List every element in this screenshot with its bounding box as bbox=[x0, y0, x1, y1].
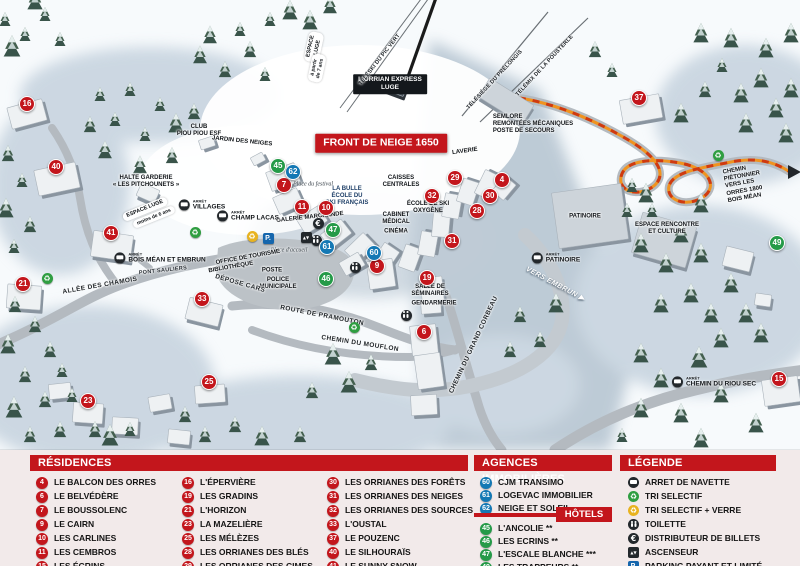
legend-number: 61 bbox=[480, 490, 492, 502]
legend-item: 30LES ORRIANES DES FORÊTS bbox=[327, 476, 465, 489]
legend-item: 16L'ÉPERVIÈRE bbox=[182, 476, 256, 489]
legend-item: 11LES CEMBROS bbox=[36, 546, 116, 559]
legend-number: 23 bbox=[182, 519, 194, 531]
legend-label: LA MAZELIÈRE bbox=[200, 520, 263, 529]
legend-number: 4 bbox=[36, 477, 48, 489]
map-marker-49: 49 bbox=[769, 235, 785, 251]
map-marker-4: 4 bbox=[494, 172, 510, 188]
legend-label: LE BALCON DES ORRES bbox=[54, 478, 156, 487]
legend-item: 61LOGEVAC IMMOBILIER bbox=[480, 489, 593, 502]
wc-icon bbox=[628, 519, 639, 530]
legend-number: 11 bbox=[36, 547, 48, 559]
legend-number: 45 bbox=[480, 523, 492, 535]
resort-map: FRONT DE NEIGE 1650L'ORRIAN EXPRESS LUGE… bbox=[0, 0, 800, 450]
legend-label: LE BELVÉDÈRE bbox=[54, 492, 119, 501]
map-marker-31: 31 bbox=[444, 233, 460, 249]
legend-item: 19LES GRADINS bbox=[182, 490, 258, 503]
legende-header: LÉGENDE bbox=[620, 455, 776, 471]
legend-item: 32LES ORRIANES DES SOURCES bbox=[327, 504, 473, 517]
legend-item: 45L'ANCOLIE ** bbox=[480, 522, 552, 535]
legend-item: 60CJM TRANSIMO bbox=[480, 476, 564, 489]
legend-item: 29LES ORRIANES DES CIMES bbox=[182, 560, 313, 566]
legend-item: 10LES CARLINES bbox=[36, 532, 116, 545]
legend-number: 15 bbox=[36, 561, 48, 566]
legend-label: LES ORRIANES DES BLÉS bbox=[200, 548, 309, 557]
legend-item: 31LES ORRIANES DES NEIGES bbox=[327, 490, 463, 503]
legend-label: L'HORIZON bbox=[200, 506, 246, 515]
map-marker-29: 29 bbox=[447, 170, 463, 186]
map-marker-30: 30 bbox=[482, 188, 498, 204]
bus-icon bbox=[628, 477, 639, 488]
residences-header: RÉSIDENCES bbox=[30, 455, 468, 471]
legend-number: 19 bbox=[182, 491, 194, 503]
legend-number: 32 bbox=[327, 505, 339, 517]
map-marker-16: 16 bbox=[19, 96, 35, 112]
legend-label: PARKING PAYANT ET LIMITÉ bbox=[645, 562, 762, 566]
legend-item: 21L'HORIZON bbox=[182, 504, 246, 517]
legend-label: LES ÉCRINS bbox=[54, 562, 105, 566]
legend-item: 6LE BELVÉDÈRE bbox=[36, 490, 119, 503]
map-marker-46: 46 bbox=[318, 271, 334, 287]
hotels-header: HÔTELS bbox=[474, 507, 612, 522]
legend-item: 41LE SUNNY SNOW bbox=[327, 560, 417, 566]
map-marker-15: 15 bbox=[771, 371, 787, 387]
map-marker-62: 62 bbox=[285, 164, 301, 180]
legend-number: 25 bbox=[182, 533, 194, 545]
legend-item: 28LES ORRIANES DES BLÉS bbox=[182, 546, 309, 559]
legend-label: LES ECRINS ** bbox=[498, 537, 558, 546]
legend-label: CJM TRANSIMO bbox=[498, 478, 564, 487]
legend-number: 37 bbox=[327, 533, 339, 545]
resort-map-screenshot: FRONT DE NEIGE 1650L'ORRIAN EXPRESS LUGE… bbox=[0, 0, 800, 566]
map-marker-41: 41 bbox=[103, 225, 119, 241]
map-marker-23: 23 bbox=[80, 393, 96, 409]
map-marker-60: 60 bbox=[366, 245, 382, 261]
legend-label: L'ÉPERVIÈRE bbox=[200, 478, 256, 487]
legend-label: LES MÉLÈZES bbox=[200, 534, 259, 543]
legend-number: 7 bbox=[36, 505, 48, 517]
legend-item: 40LE SILHOURAÏS bbox=[327, 546, 411, 559]
legend-label: LE CAIRN bbox=[54, 520, 94, 529]
legend-item: 7LE BOUSSOLENC bbox=[36, 504, 127, 517]
map-marker-28: 28 bbox=[469, 203, 485, 219]
hotels-divider bbox=[474, 513, 556, 517]
legend-label: TRI SELECTIF + VERRE bbox=[645, 506, 741, 515]
legend-label: LE SUNNY SNOW bbox=[345, 562, 417, 566]
legend-item: 9LE CAIRN bbox=[36, 518, 94, 531]
legend-item: TRI SELECTIF + VERRE bbox=[628, 504, 741, 517]
map-marker-10: 10 bbox=[318, 200, 334, 216]
legend-item: TOILETTE bbox=[628, 518, 686, 531]
legend-label: LE POUZENC bbox=[345, 534, 400, 543]
legend-label: LE SILHOURAÏS bbox=[345, 548, 411, 557]
legend-item: 23LA MAZELIÈRE bbox=[182, 518, 263, 531]
legend-number: 41 bbox=[327, 561, 339, 566]
map-marker-37: 37 bbox=[631, 90, 647, 106]
legend-item: 33L'OUSTAL bbox=[327, 518, 387, 531]
legend-item: DISTRIBUTEUR DE BILLETS bbox=[628, 532, 760, 545]
map-marker-61: 61 bbox=[319, 239, 335, 255]
legend-label: LES ORRIANES DES NEIGES bbox=[345, 492, 463, 501]
legend-item: 25LES MÉLÈZES bbox=[182, 532, 259, 545]
legend-label: L'ESCALE BLANCHE *** bbox=[498, 550, 596, 559]
agences-header: AGENCES IMMOBILIÈRES bbox=[474, 455, 612, 471]
map-marker-25: 25 bbox=[201, 374, 217, 390]
legend-label: LES ORRIANES DES FORÊTS bbox=[345, 478, 465, 487]
legend-number: 46 bbox=[480, 536, 492, 548]
legend-label: DISTRIBUTEUR DE BILLETS bbox=[645, 534, 760, 543]
legend-number: 30 bbox=[327, 477, 339, 489]
euro-icon bbox=[628, 533, 639, 544]
legend-number: 29 bbox=[182, 561, 194, 566]
map-marker-6: 6 bbox=[416, 324, 432, 340]
legend-number: 21 bbox=[182, 505, 194, 517]
legend-item: ASCENSEUR bbox=[628, 546, 698, 559]
legend-panel: RÉSIDENCES AGENCES IMMOBILIÈRES LÉGENDE … bbox=[0, 450, 800, 566]
legend-label: LES GRADINS bbox=[200, 492, 258, 501]
map-marker-45: 45 bbox=[270, 158, 286, 174]
recycle-green-icon bbox=[628, 491, 639, 502]
legend-item: 49LES TRAPPEURS ** bbox=[480, 561, 578, 566]
map-marker-47: 47 bbox=[325, 222, 341, 238]
legend-number: 40 bbox=[327, 547, 339, 559]
legend-number: 16 bbox=[182, 477, 194, 489]
legend-label: TOILETTE bbox=[645, 520, 686, 529]
legend-label: L'OUSTAL bbox=[345, 520, 387, 529]
legend-label: LE BOUSSOLENC bbox=[54, 506, 127, 515]
legend-label: ASCENSEUR bbox=[645, 548, 698, 557]
legend-number: 28 bbox=[182, 547, 194, 559]
legend-item: 46LES ECRINS ** bbox=[480, 535, 558, 548]
legend-item: 47L'ESCALE BLANCHE *** bbox=[480, 548, 596, 561]
map-marker-32: 32 bbox=[424, 188, 440, 204]
legend-label: ARRET DE NAVETTE bbox=[645, 478, 730, 487]
recycle-yellow-icon bbox=[628, 505, 639, 516]
legend-item: PARKING PAYANT ET LIMITÉ bbox=[628, 560, 762, 566]
elevator-icon bbox=[628, 547, 639, 558]
map-markers: 1640412133232571110919632292831304371560… bbox=[0, 0, 800, 450]
legend-number: 60 bbox=[480, 477, 492, 489]
legend-label: LOGEVAC IMMOBILIER bbox=[498, 491, 593, 500]
map-marker-33: 33 bbox=[194, 291, 210, 307]
legend-number: 6 bbox=[36, 491, 48, 503]
legend-item: ARRET DE NAVETTE bbox=[628, 476, 730, 489]
hotels-title: HÔTELS bbox=[556, 507, 612, 522]
legend-label: LES ORRIANES DES CIMES bbox=[200, 562, 313, 566]
legend-item: TRI SELECTIF bbox=[628, 490, 702, 503]
legend-item: 15LES ÉCRINS bbox=[36, 560, 105, 566]
legend-item: 37LE POUZENC bbox=[327, 532, 400, 545]
map-marker-11: 11 bbox=[294, 199, 310, 215]
map-marker-40: 40 bbox=[48, 159, 64, 175]
legend-number: 33 bbox=[327, 519, 339, 531]
map-marker-19: 19 bbox=[419, 270, 435, 286]
legend-number: 49 bbox=[480, 562, 492, 566]
legend-label: LES CEMBROS bbox=[54, 548, 116, 557]
parking-icon bbox=[628, 561, 639, 566]
map-marker-21: 21 bbox=[15, 276, 31, 292]
legend-number: 31 bbox=[327, 491, 339, 503]
legend-label: LES ORRIANES DES SOURCES bbox=[345, 506, 473, 515]
legend-number: 9 bbox=[36, 519, 48, 531]
legend-number: 10 bbox=[36, 533, 48, 545]
legend-label: TRI SELECTIF bbox=[645, 492, 702, 501]
legend-label: LES CARLINES bbox=[54, 534, 116, 543]
legend-label: L'ANCOLIE ** bbox=[498, 524, 552, 533]
legend-item: 4LE BALCON DES ORRES bbox=[36, 476, 156, 489]
legend-number: 47 bbox=[480, 549, 492, 561]
